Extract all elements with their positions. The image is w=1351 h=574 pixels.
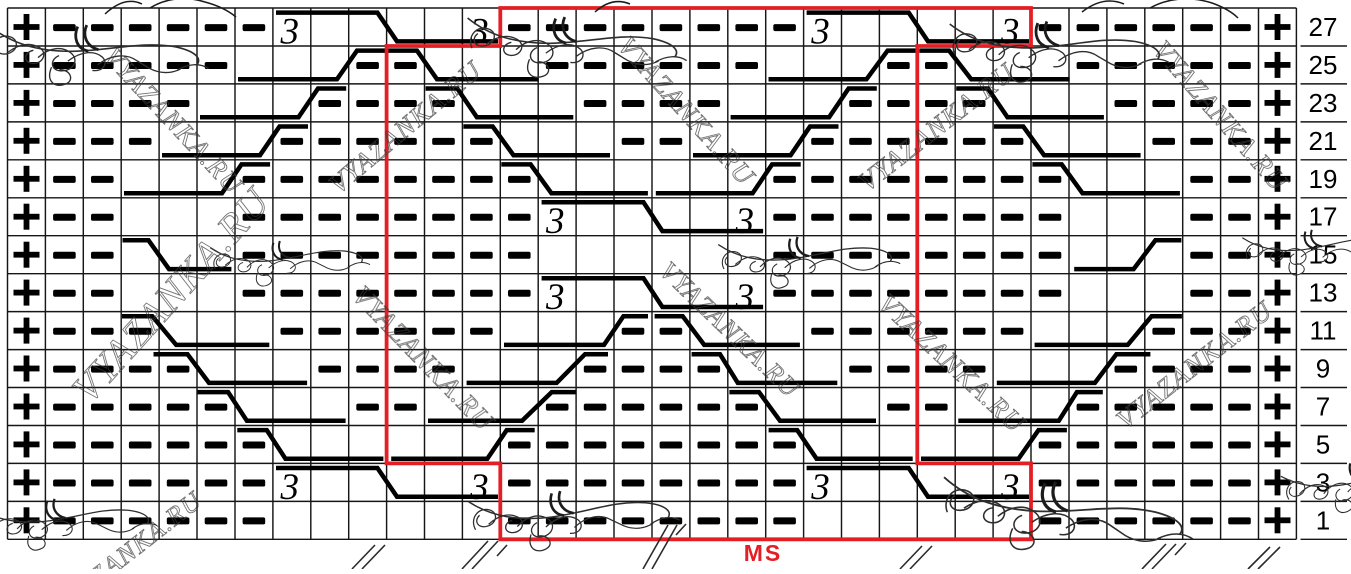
svg-text:21: 21 xyxy=(1309,126,1338,156)
svg-text:3: 3 xyxy=(545,277,565,318)
svg-text:3: 3 xyxy=(280,467,300,508)
svg-text:11: 11 xyxy=(1310,316,1337,346)
svg-text:23: 23 xyxy=(1309,88,1338,118)
svg-text:27: 27 xyxy=(1309,12,1338,42)
svg-text:3: 3 xyxy=(469,467,489,508)
svg-text:13: 13 xyxy=(1309,278,1338,308)
svg-text:3: 3 xyxy=(810,12,830,53)
svg-text:3: 3 xyxy=(734,201,754,242)
svg-text:MS: MS xyxy=(744,540,783,566)
svg-text:5: 5 xyxy=(1316,429,1330,459)
svg-text:25: 25 xyxy=(1309,50,1338,80)
svg-text:9: 9 xyxy=(1316,354,1330,384)
svg-text:3: 3 xyxy=(545,201,565,242)
svg-text:7: 7 xyxy=(1316,392,1330,422)
svg-text:3: 3 xyxy=(1000,467,1020,508)
svg-text:3: 3 xyxy=(734,277,754,318)
svg-text:3: 3 xyxy=(810,467,830,508)
svg-text:19: 19 xyxy=(1309,164,1338,194)
svg-text:1: 1 xyxy=(1316,505,1330,535)
svg-text:17: 17 xyxy=(1309,202,1338,232)
svg-text:3: 3 xyxy=(280,12,300,53)
